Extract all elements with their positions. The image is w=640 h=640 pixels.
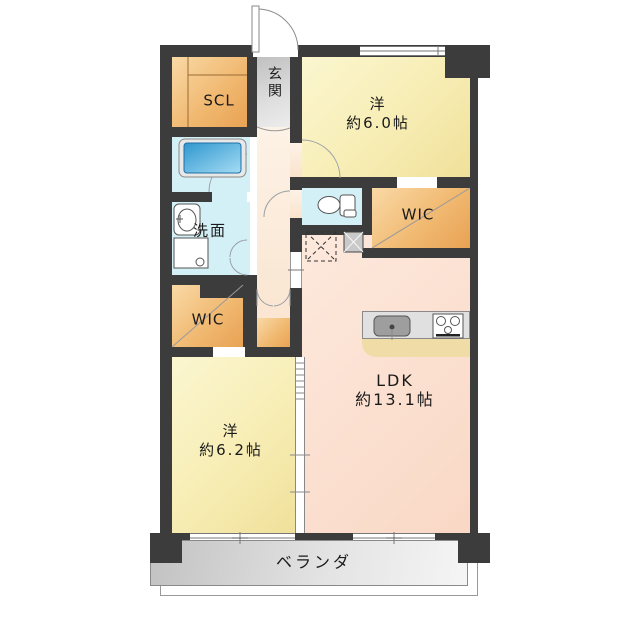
- partition-hatch: [290, 363, 310, 492]
- bathtub-icon: [179, 139, 246, 177]
- kitchen-sink-icon: [374, 316, 410, 340]
- washroom-label: 洗面: [193, 222, 227, 241]
- scl-label: SCL: [203, 92, 234, 111]
- bedroom-top-size: 約6.0帖: [346, 114, 410, 133]
- wic-right-label: WIC: [402, 206, 435, 225]
- plan-symbols-layer: [0, 0, 640, 640]
- toilet-door-arc: [264, 191, 290, 217]
- pipe-shaft-icon: [344, 232, 363, 252]
- washer-pan-icon: [174, 238, 208, 268]
- bedroom-top-name: 洋: [346, 95, 410, 114]
- bedroom-top-door-arc: [302, 140, 340, 178]
- bedroom-bottom-label: 洋 約6.2帖: [199, 422, 263, 460]
- hall-closet-bifold-icon: [257, 289, 290, 306]
- bedroom-bottom-name: 洋: [199, 422, 263, 441]
- toilet-icon: [318, 195, 356, 217]
- genkan-step-line: [257, 127, 290, 131]
- floor-plan: SCL 玄関 洋 約6.0帖 WIC 洗面 WIC LDK 約13.1帖 洋 約…: [0, 0, 640, 640]
- washroom-bifold-door-icon: [230, 240, 247, 275]
- entrance-door-icon: [252, 6, 298, 52]
- wic-left-label: WIC: [192, 311, 225, 330]
- veranda-label: ベランダ: [276, 553, 352, 572]
- ldk-name: LDK: [355, 371, 435, 390]
- stove-icon: [433, 314, 463, 338]
- genkan-label: 玄関: [264, 66, 283, 100]
- bedroom-bottom-size: 約6.2帖: [199, 441, 263, 460]
- ldk-size: 約13.1帖: [355, 390, 435, 409]
- bedroom-top-label: 洋 約6.0帖: [346, 95, 410, 133]
- refrigerator-space-icon: [306, 232, 336, 261]
- ldk-label: LDK 約13.1帖: [355, 371, 435, 409]
